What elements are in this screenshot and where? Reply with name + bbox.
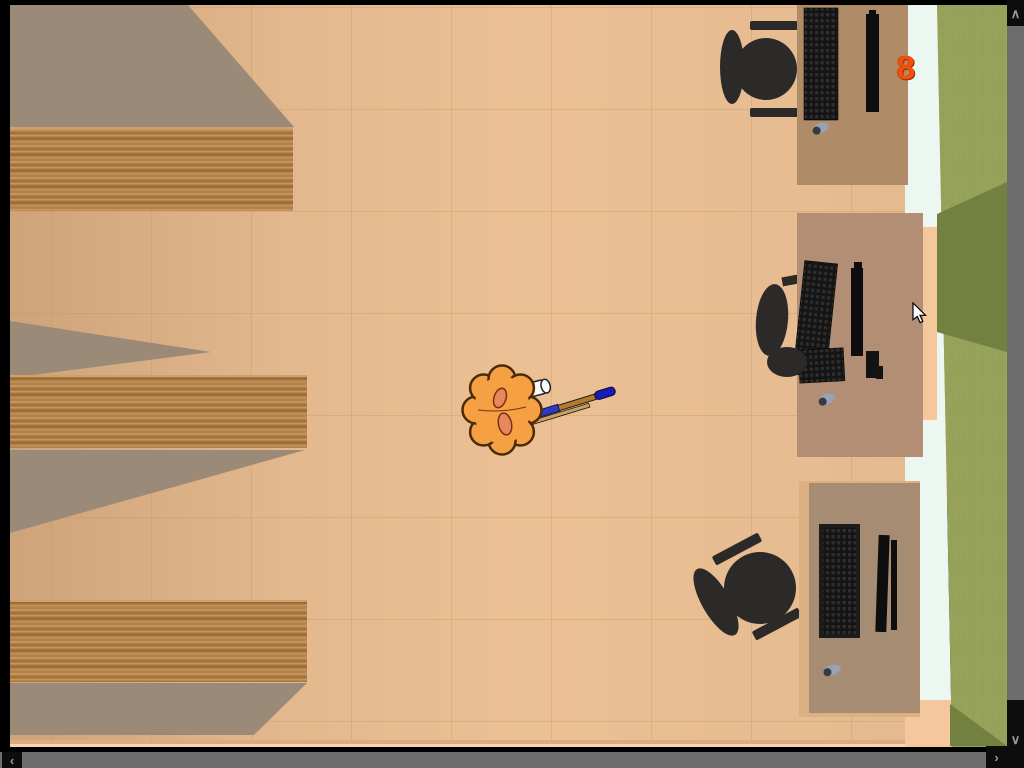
game-window[interactable]: 8 ∧ ∨ ‹ › bbox=[0, 0, 1024, 768]
character-body bbox=[463, 366, 542, 455]
monitor bbox=[875, 535, 897, 632]
chevron-left-icon: ‹ bbox=[10, 754, 14, 767]
keyboard bbox=[819, 524, 860, 638]
wooden-shelf-bottom bbox=[10, 600, 307, 682]
wooden-shelf-middle bbox=[10, 375, 307, 448]
monitor bbox=[866, 10, 879, 112]
scroll-left-button[interactable]: ‹ bbox=[2, 752, 22, 768]
wooden-shelf-top bbox=[10, 127, 293, 211]
monitor bbox=[851, 262, 863, 356]
scroll-right-button[interactable]: › bbox=[986, 746, 1007, 768]
keyboard bbox=[804, 8, 838, 120]
game-scene[interactable] bbox=[0, 0, 1024, 768]
chevron-down-icon: ∨ bbox=[1011, 733, 1021, 746]
score-counter: 8 bbox=[889, 49, 923, 87]
horizontal-scrollbar[interactable]: ‹ › bbox=[0, 752, 1007, 768]
chevron-right-icon: › bbox=[994, 751, 998, 764]
chevron-up-icon: ∧ bbox=[1011, 7, 1021, 20]
vertical-scrollbar-end: ∨ bbox=[1007, 700, 1024, 768]
chair-seat bbox=[767, 347, 807, 377]
scroll-up-button[interactable]: ∧ bbox=[1007, 0, 1024, 26]
scroll-down-button[interactable]: ∨ bbox=[1007, 730, 1024, 748]
vertical-scrollbar[interactable]: ∧ ∨ bbox=[1007, 0, 1024, 768]
